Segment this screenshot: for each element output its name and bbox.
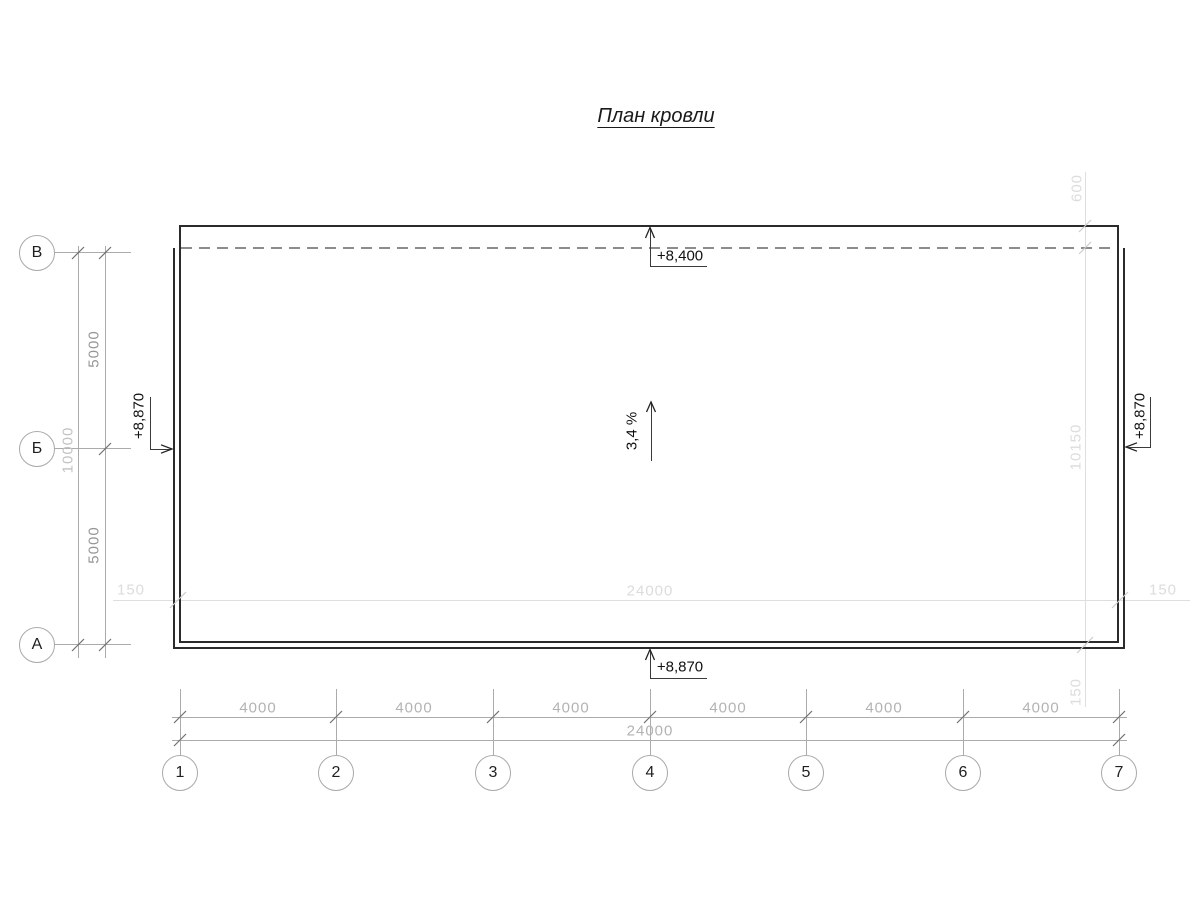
col-axis-line-5 (806, 689, 807, 755)
col-axis-line-3 (493, 689, 494, 755)
axis-circle-col-3: 3 (475, 755, 511, 791)
dim-left-total: 10000 (61, 427, 76, 474)
col-axis-line-7 (1119, 689, 1120, 755)
elev-right-arrow-line (1128, 447, 1150, 448)
axis-circle-col-4: 4 (632, 755, 668, 791)
dim-bottom-span-2: 4000 (395, 701, 432, 716)
left-dim-line-total (78, 246, 79, 658)
axis-circle-row-b: Б (19, 431, 55, 467)
axis-label-col-6: 6 (959, 764, 968, 782)
axis-label-col-5: 5 (802, 764, 811, 782)
row-axis-line-v (54, 252, 131, 253)
elev-right-leader-line (1150, 397, 1151, 448)
axis-circle-row-a: А (19, 627, 55, 663)
elev-left-leader-line (150, 397, 151, 450)
axis-circle-col-6: 6 (945, 755, 981, 791)
elev-bottom-leader-line (650, 678, 707, 679)
elev-top-arrow-line (650, 228, 651, 267)
col-axis-line-2 (336, 689, 337, 755)
roof-plan-drawing: План кровли 150 24000 150 600 10150 150 … (0, 0, 1200, 900)
dim-offset-bottom: 150 (1069, 678, 1084, 706)
axis-label-row-v: В (32, 244, 43, 262)
dim-offset-left: 150 (117, 583, 145, 598)
dim-bottom-span-6: 4000 (1022, 701, 1059, 716)
elevation-left-label: +8,870 (132, 393, 147, 439)
col-axis-line-6 (963, 689, 964, 755)
dim-left-span-1: 5000 (87, 330, 102, 367)
col-axis-line-1 (180, 689, 181, 755)
dim-offset-right: 150 (1149, 583, 1177, 598)
dim-bottom-span-3: 4000 (552, 701, 589, 716)
left-dim-line-spans (105, 246, 106, 658)
dim-bottom-span-4: 4000 (709, 701, 746, 716)
elevation-right-label: +8,870 (1133, 393, 1148, 439)
axis-label-col-2: 2 (332, 764, 341, 782)
elev-left-arrow-line (151, 449, 171, 450)
elevation-top-label: +8,400 (657, 249, 703, 264)
slope-label: 3,4 % (625, 412, 640, 450)
bottom-dim-line-spans (172, 717, 1127, 718)
dim-overhang-top: 600 (1070, 174, 1085, 202)
roof-outline (179, 225, 1119, 643)
elevation-bottom-label: +8,870 (657, 660, 703, 675)
dim-left-span-2: 5000 (87, 526, 102, 563)
axis-label-col-1: 1 (176, 764, 185, 782)
axis-circle-col-2: 2 (318, 755, 354, 791)
axis-label-col-3: 3 (489, 764, 498, 782)
axis-circle-row-v: В (19, 235, 55, 271)
axis-circle-col-1: 1 (162, 755, 198, 791)
axis-circle-col-5: 5 (788, 755, 824, 791)
bottom-dim-line-total (172, 740, 1127, 741)
drawing-title: План кровли (597, 106, 714, 126)
dim-bottom-span-5: 4000 (865, 701, 902, 716)
axis-circle-col-7: 7 (1101, 755, 1137, 791)
parapet-edge-bottom (173, 647, 1125, 649)
parapet-edge-right (1123, 248, 1125, 649)
axis-label-col-4: 4 (646, 764, 655, 782)
axis-label-row-b: Б (32, 440, 43, 458)
slope-arrow-line (651, 402, 652, 461)
elev-bottom-arrow-line (650, 650, 651, 679)
dim-bottom-span-1: 4000 (239, 701, 276, 716)
axis-label-col-7: 7 (1115, 764, 1124, 782)
dim-bottom-total: 24000 (627, 724, 674, 739)
axis-label-row-a: А (32, 636, 43, 654)
elev-top-leader-line (650, 266, 707, 267)
parapet-edge-left (173, 248, 175, 649)
row-axis-line-a (54, 644, 131, 645)
